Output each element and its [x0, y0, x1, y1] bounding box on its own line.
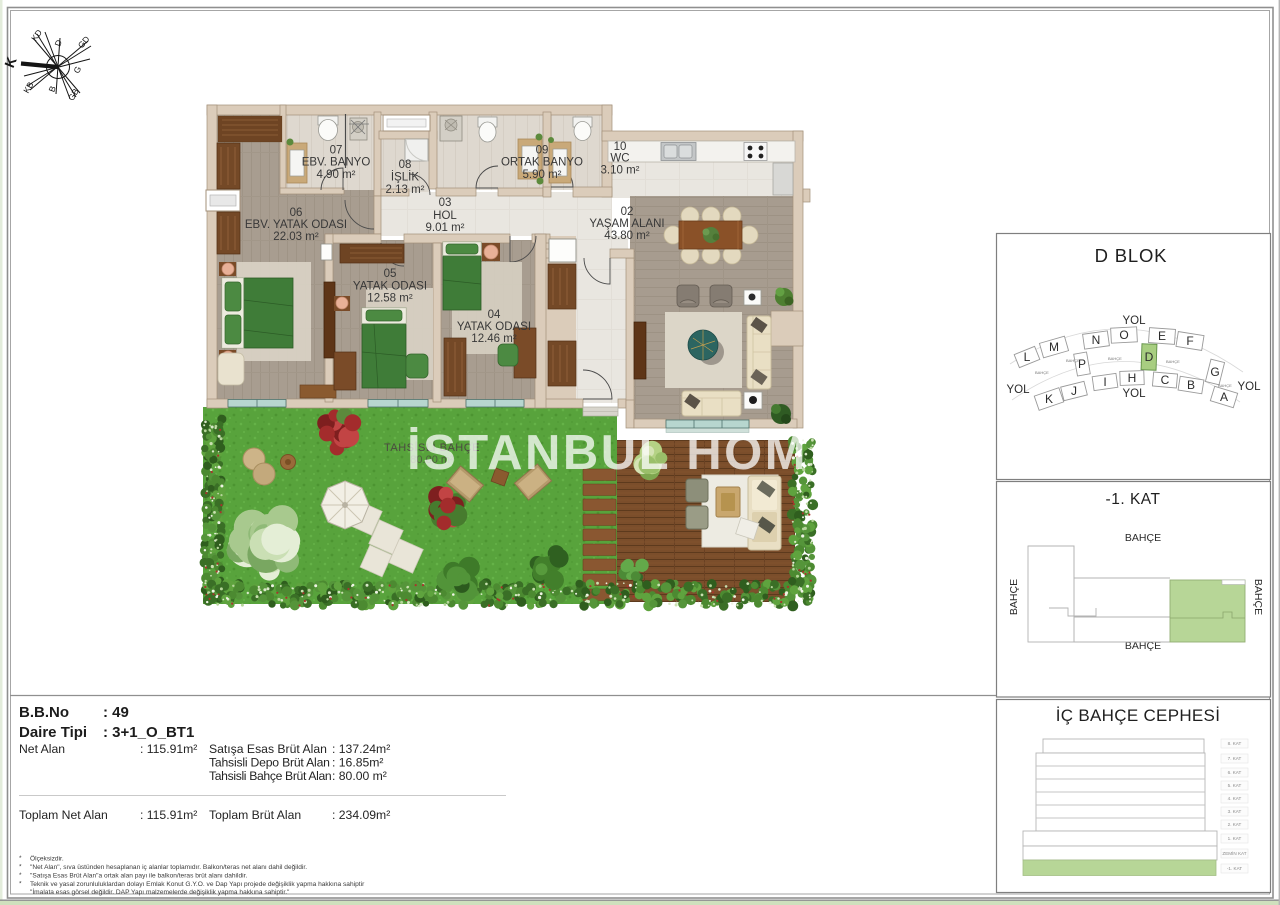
svg-text:-1. KAT: -1. KAT [1106, 491, 1161, 508]
svg-text:İÇ BAHÇE CEPHESİ: İÇ BAHÇE CEPHESİ [1056, 706, 1220, 725]
svg-text:07: 07 [330, 145, 343, 157]
svg-text:09: 09 [536, 145, 549, 157]
svg-text:BAHÇE: BAHÇE [1008, 579, 1020, 615]
svg-text:M: M [1049, 340, 1059, 354]
svg-text:08: 08 [399, 159, 412, 171]
svg-text:: 80.00 m²: : 80.00 m² [332, 769, 387, 783]
svg-text:2. KAT: 2. KAT [1228, 822, 1242, 827]
svg-text:B.B.No: B.B.No [19, 704, 69, 721]
svg-text:1. KAT: 1. KAT [1228, 836, 1242, 841]
svg-text:12.58 m²: 12.58 m² [367, 293, 413, 305]
svg-text:05: 05 [384, 268, 397, 280]
svg-text:*: * [19, 881, 22, 888]
svg-text:"Net Alan", sıva üstünden hesa: "Net Alan", sıva üstünden hesaplanan iç … [30, 864, 307, 871]
svg-text:YOL: YOL [1006, 384, 1030, 396]
svg-text:İŞLİK: İŞLİK [391, 171, 419, 184]
svg-text:06: 06 [290, 207, 303, 219]
svg-text:Teknik ve yasal zorunluluklard: Teknik ve yasal zorunluluklardan dolayı … [30, 881, 365, 888]
svg-text:ORTAK BANYO: ORTAK BANYO [501, 157, 583, 169]
svg-text:L: L [1024, 350, 1031, 364]
svg-text:H: H [1128, 371, 1137, 385]
svg-text:Toplam Brüt Alan: Toplam Brüt Alan [209, 808, 301, 822]
svg-text:*: * [19, 855, 22, 862]
svg-text:BAHÇE: BAHÇE [1166, 359, 1180, 364]
svg-text:G: G [1210, 365, 1219, 379]
svg-text:BAHÇE: BAHÇE [1252, 579, 1264, 615]
svg-text:4. KAT: 4. KAT [1228, 796, 1242, 801]
svg-text:BAHÇE: BAHÇE [1125, 532, 1161, 544]
svg-text:EBV. BANYO: EBV. BANYO [302, 157, 371, 169]
svg-text:Toplam Net Alan: Toplam Net Alan [19, 808, 108, 822]
svg-text:F: F [1186, 334, 1193, 348]
svg-text:YOL: YOL [1122, 315, 1146, 327]
svg-text:YATAK ODASI: YATAK ODASI [353, 281, 427, 293]
svg-text:B: B [1187, 378, 1195, 392]
svg-text:: 115.91m²: : 115.91m² [140, 742, 197, 756]
svg-text:YAŞAM ALANI: YAŞAM ALANI [589, 218, 664, 230]
svg-text:3.10 m²: 3.10 m² [601, 165, 640, 177]
svg-text:D BLOK: D BLOK [1095, 245, 1168, 266]
svg-text:4.90 m²: 4.90 m² [317, 169, 356, 181]
svg-text:: 16.85m²: : 16.85m² [332, 756, 383, 770]
svg-text:O: O [1119, 328, 1128, 342]
svg-text:10: 10 [614, 141, 627, 153]
svg-text:*: * [19, 872, 22, 879]
svg-text:8. KAT: 8. KAT [1228, 741, 1242, 746]
svg-text:BAHÇE: BAHÇE [1218, 383, 1232, 388]
svg-text:C: C [1161, 373, 1170, 387]
svg-text:Tahsisli Bahçe Brüt Alan: Tahsisli Bahçe Brüt Alan [209, 769, 331, 783]
svg-text:9.01 m²: 9.01 m² [426, 222, 465, 234]
svg-text:03: 03 [439, 197, 452, 209]
svg-text:04: 04 [488, 309, 501, 321]
svg-text:3. KAT: 3. KAT [1228, 809, 1242, 814]
svg-text:: 137.24m²: : 137.24m² [332, 742, 390, 756]
svg-text:-1. KAT: -1. KAT [1227, 866, 1242, 871]
svg-text:Tahsisli Depo Brüt Alan: Tahsisli Depo Brüt Alan [209, 756, 330, 770]
svg-text:: 234.09m²: : 234.09m² [332, 808, 390, 822]
svg-text:*: * [19, 864, 22, 871]
svg-text:BAHÇE: BAHÇE [1108, 356, 1122, 361]
svg-text:12.46 m²: 12.46 m² [471, 333, 517, 345]
svg-text:5. KAT: 5. KAT [1228, 783, 1242, 788]
svg-text:6. KAT: 6. KAT [1228, 770, 1242, 775]
svg-text:: 115.91m²: : 115.91m² [140, 808, 197, 822]
svg-text:A: A [1220, 390, 1228, 404]
svg-text:YOL: YOL [1237, 381, 1261, 393]
svg-text:: 49: : 49 [103, 704, 129, 721]
svg-text:WC: WC [610, 153, 629, 165]
svg-text:BAHÇE: BAHÇE [1066, 358, 1080, 363]
svg-text:K: K [1045, 392, 1053, 406]
svg-text:43.80 m²: 43.80 m² [604, 230, 650, 242]
svg-text:"İmalata esas görsel değildir.: "İmalata esas görsel değildir. DAP Yapı … [30, 887, 290, 896]
svg-text:: 3+1_O_BT1: : 3+1_O_BT1 [103, 724, 194, 741]
svg-text:7. KAT: 7. KAT [1228, 756, 1242, 761]
svg-text:E: E [1158, 329, 1166, 343]
svg-text:Net Alan: Net Alan [19, 742, 65, 756]
svg-text:N: N [1092, 333, 1101, 347]
svg-text:J: J [1071, 384, 1077, 398]
svg-text:YOL: YOL [1122, 388, 1146, 400]
svg-text:BAHÇE: BAHÇE [1035, 370, 1049, 375]
svg-text:Ölçeksizdir.: Ölçeksizdir. [30, 855, 64, 863]
svg-text:5.90 m²: 5.90 m² [523, 169, 562, 181]
svg-text:22.03 m²: 22.03 m² [273, 231, 319, 243]
svg-text:EBV. YATAK ODASI: EBV. YATAK ODASI [245, 219, 347, 231]
svg-text:ZEMİN KAT: ZEMİN KAT [1222, 850, 1246, 856]
svg-text:"Satışa Esas Brüt Alan"a ortak: "Satışa Esas Brüt Alan"a ortak alan payı… [30, 873, 247, 880]
svg-text:Daire Tipi: Daire Tipi [19, 724, 87, 741]
svg-text:Satışa Esas Brüt Alan: Satışa Esas Brüt Alan [209, 742, 327, 756]
svg-text:02: 02 [621, 206, 634, 218]
svg-text:2.13 m²: 2.13 m² [386, 184, 425, 196]
svg-text:D: D [1145, 350, 1154, 364]
svg-text:I: I [1103, 375, 1106, 389]
svg-text:YATAK ODASI: YATAK ODASI [457, 321, 531, 333]
svg-text:HOL: HOL [433, 210, 457, 222]
